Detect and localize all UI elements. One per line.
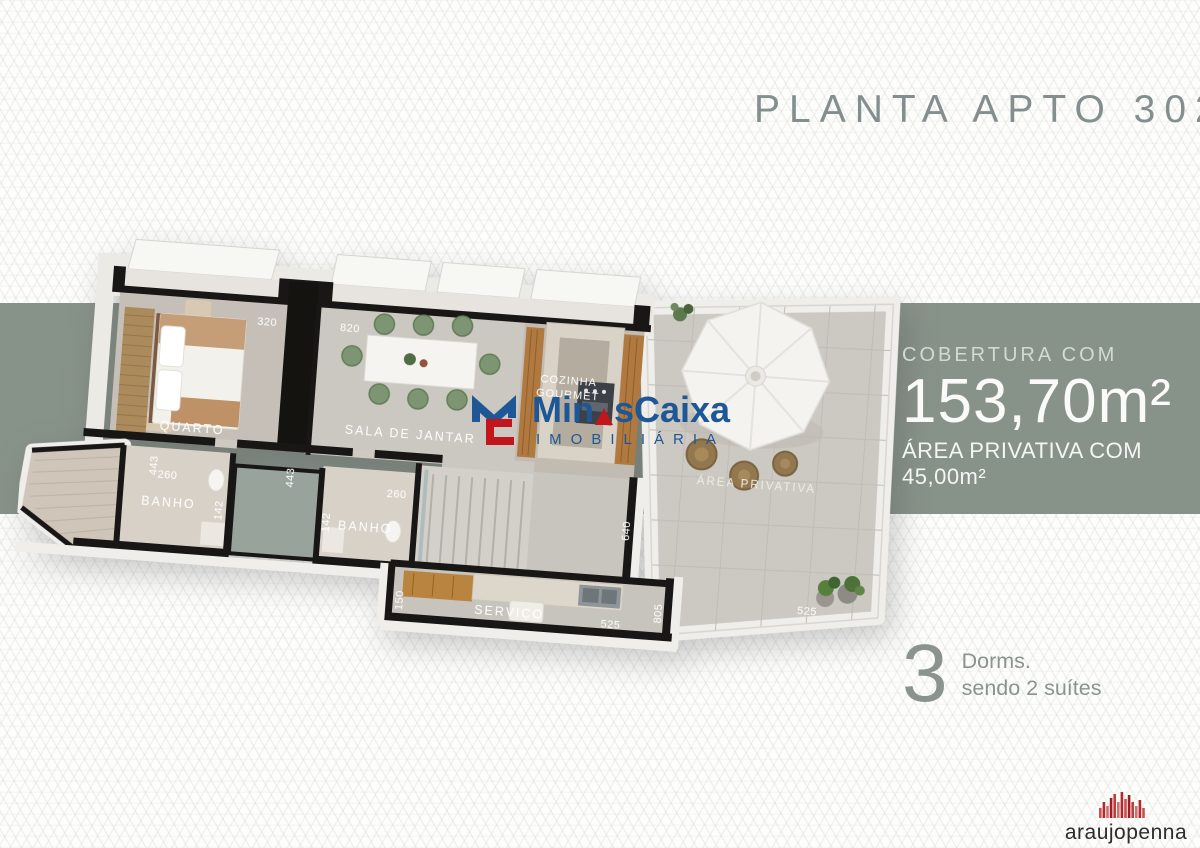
page-title: PLANTA APTO 302: [754, 88, 1174, 132]
dorms-sublabel: sendo 2 suítes: [962, 675, 1102, 702]
minascaixa-text: MinsCaixa IMOBILIÁRIA: [532, 392, 730, 448]
dorms-count: 3: [902, 636, 948, 711]
dim-banho-left-w: 260: [157, 469, 178, 482]
dim-sala-bottom: 443: [284, 467, 297, 488]
bed: [148, 313, 246, 429]
dim-banho-right-h: 142: [320, 512, 333, 533]
dim-servico-h: 150: [393, 590, 406, 611]
shaft: [229, 465, 323, 559]
closet-room: [19, 438, 125, 551]
red-triangle-icon: [595, 408, 613, 425]
minascaixa-name-post: sCaixa: [614, 392, 730, 428]
dim-servico-w: 525: [600, 618, 621, 631]
skyline-icon: [1093, 790, 1159, 818]
dim-hall: 640: [620, 521, 633, 542]
area-value: 153,70m²: [902, 367, 1200, 436]
dim-banho-right-w: 260: [386, 488, 407, 501]
area-info: COBERTURA COM 153,70m² ÁREA PRIVATIVA CO…: [902, 344, 1200, 490]
dim-terraco-w: 525: [797, 605, 818, 618]
dim-terraco-h: 805: [652, 603, 665, 624]
floor-plan: 320 820 443 443 260 142 142 260 640 150 …: [6, 204, 928, 729]
agency-logo: araujopenna: [1054, 790, 1198, 845]
stairs: [414, 465, 533, 573]
cobertura-label: COBERTURA COM: [902, 344, 1200, 367]
minascaixa-watermark: MinsCaixa IMOBILIÁRIA: [468, 392, 730, 450]
dim-quarto-top: 320: [257, 316, 278, 329]
dim-banho-left-h: 142: [212, 500, 225, 521]
dorms-info: 3 Dorms. sendo 2 suítes: [902, 636, 1101, 711]
minascaixa-name-pre: Min: [532, 392, 594, 428]
agency-name: araujopenna: [1054, 821, 1198, 845]
dorms-text: Dorms. sendo 2 suítes: [962, 636, 1102, 711]
dim-sala-top: 820: [340, 322, 361, 335]
area-privativa-label: ÁREA PRIVATIVA COM 45,00m²: [902, 438, 1200, 490]
minascaixa-name: MinsCaixa: [532, 392, 730, 428]
minascaixa-mark-icon: [468, 392, 524, 450]
minascaixa-subtitle: IMOBILIÁRIA: [532, 431, 730, 448]
dorms-label: Dorms.: [962, 648, 1102, 675]
floor-plan-svg: 320 820 443 443 260 142 142 260 640 150 …: [6, 204, 928, 729]
